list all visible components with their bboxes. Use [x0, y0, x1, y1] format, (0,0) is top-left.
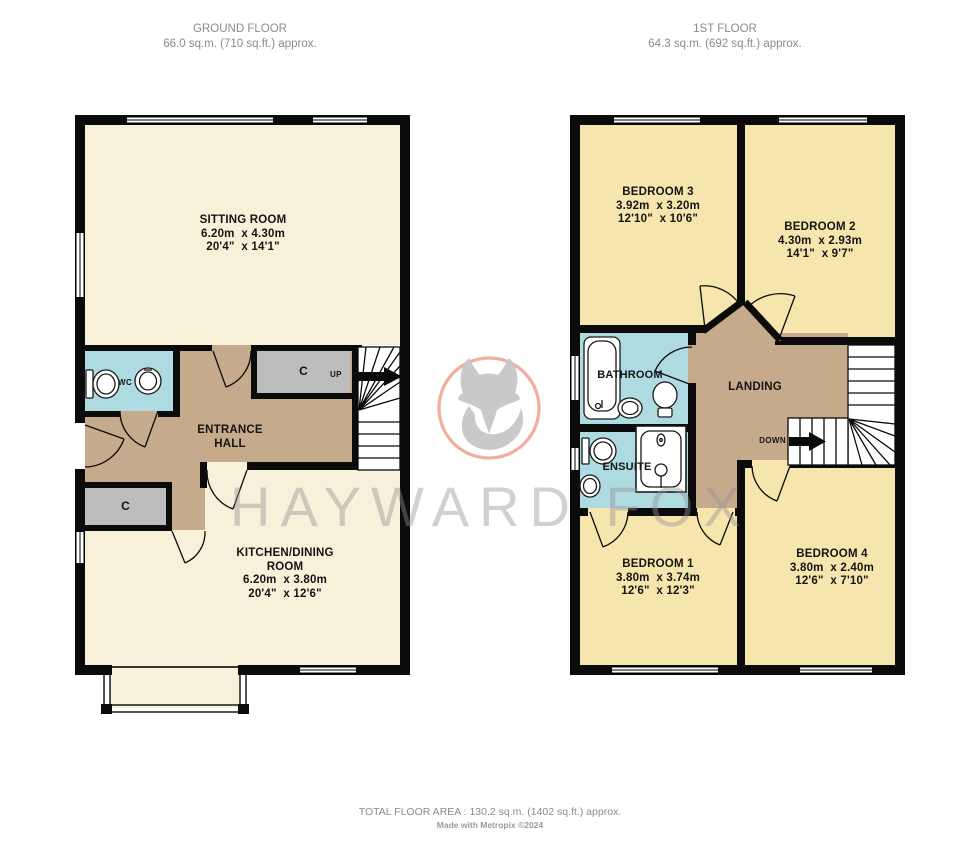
fox-logo-head [458, 358, 523, 450]
shower-icon [636, 426, 686, 492]
fox-logo-circle [439, 358, 539, 458]
bedroom-2-name: BEDROOM 2 [710, 221, 930, 235]
bathroom-toilet-icon [653, 382, 677, 417]
bedroom-3-metric: 3.92m x 3.20m [548, 200, 768, 214]
stairs-up [358, 347, 400, 470]
stairs-down [788, 345, 895, 465]
sitting-room-imperial: 20'4" x 14'1" [133, 241, 353, 255]
kitchen-label: KITCHEN/DINING ROOM 6.20m x 3.80m 20'4" … [175, 547, 395, 601]
sitting-room-metric: 6.20m x 4.30m [133, 228, 353, 242]
bay-window [104, 667, 246, 712]
kitchen-metric: 6.20m x 3.80m [175, 574, 395, 588]
up-label: UP [330, 370, 356, 379]
bay-window-posts [101, 665, 249, 714]
toilet-icon [86, 370, 119, 398]
entrance-hall-name-2: HALL [150, 438, 310, 452]
first-floor-area: 64.3 sq.m. (692 sq.ft.) approx. [575, 37, 875, 52]
footer-credit: Made with Metropix ©2024 [240, 819, 740, 831]
ground-floor-header: GROUND FLOOR 66.0 sq.m. (710 sq.ft.) app… [90, 22, 390, 52]
kitchen-imperial: 20'4" x 12'6" [175, 588, 395, 602]
ground-floor-title: GROUND FLOOR [90, 22, 390, 37]
fox-logo [428, 346, 550, 470]
first-floor-title: 1ST FLOOR [575, 22, 875, 37]
door-bedroom-4 [752, 466, 790, 501]
bedroom-2-imperial: 14'1" x 9'7" [710, 248, 930, 262]
bedroom-4-imperial: 12'6" x 7'10" [722, 575, 942, 589]
down-label: DOWN [744, 436, 786, 445]
floorplan-page: GROUND FLOOR 66.0 sq.m. (710 sq.ft.) app… [0, 0, 980, 867]
kitchen-name-2: ROOM [175, 561, 395, 575]
closet-side-label: C [85, 499, 166, 513]
door-ensuite [590, 512, 628, 547]
bedroom-4-metric: 3.80m x 2.40m [722, 562, 942, 576]
door-kitchen [207, 470, 247, 509]
door-bedroom-1 [697, 512, 733, 545]
bedroom-2-metric: 4.30m x 2.93m [710, 235, 930, 249]
sitting-room-name: SITTING ROOM [133, 214, 353, 228]
bathroom-label: BATHROOM [578, 369, 682, 383]
sitting-room-label: SITTING ROOM 6.20m x 4.30m 20'4" x 14'1" [133, 214, 353, 255]
bathroom-sink-icon [618, 398, 642, 418]
landing-peak [703, 301, 781, 341]
ground-floor-detail-layer [65, 105, 420, 725]
footer-total-area: TOTAL FLOOR AREA : 130.2 sq.m. (1402 sq.… [240, 806, 740, 819]
kitchen-name-1: KITCHEN/DINING [175, 547, 395, 561]
bedroom-4-label: BEDROOM 4 3.80m x 2.40m 12'6" x 7'10" [722, 548, 942, 589]
ensuite-label: ENSUITE [575, 461, 679, 475]
wc-label: WC [118, 378, 148, 387]
bedroom-3-name: BEDROOM 3 [548, 186, 768, 200]
footer: TOTAL FLOOR AREA : 130.2 sq.m. (1402 sq.… [240, 806, 740, 831]
door-sitting-room [213, 351, 251, 387]
bedroom-2-label: BEDROOM 2 4.30m x 2.93m 14'1" x 9'7" [710, 221, 930, 262]
door-front [85, 425, 124, 467]
ground-floor-area: 66.0 sq.m. (710 sq.ft.) approx. [90, 37, 390, 52]
ensuite-sink-icon [580, 475, 600, 497]
bedroom-4-name: BEDROOM 4 [722, 548, 942, 562]
first-floor-header: 1ST FLOOR 64.3 sq.m. (692 sq.ft.) approx… [575, 22, 875, 52]
entrance-hall-name-1: ENTRANCE [150, 424, 310, 438]
entrance-hall-label: ENTRANCE HALL [150, 424, 310, 451]
landing-label: LANDING [695, 381, 815, 395]
